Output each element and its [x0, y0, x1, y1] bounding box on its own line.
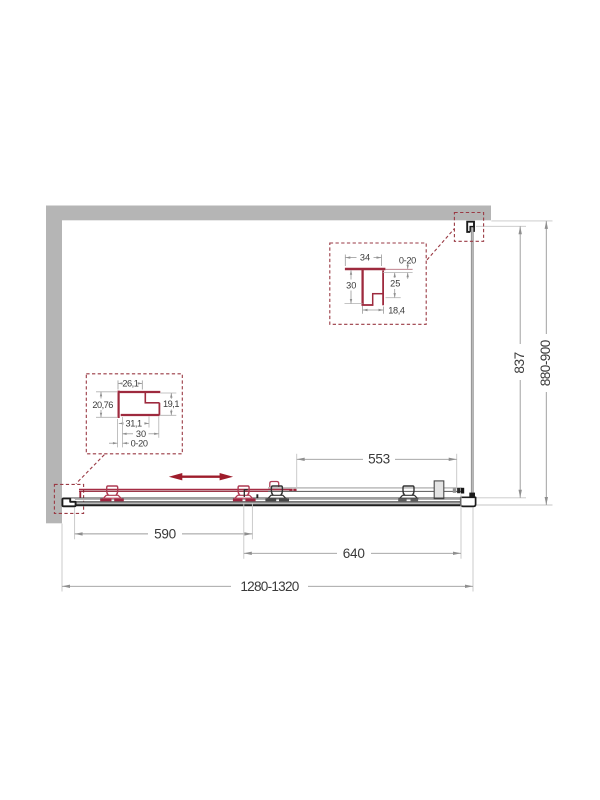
svg-text:1280-1320: 1280-1320 [240, 579, 299, 594]
svg-text:26,1: 26,1 [122, 378, 138, 388]
svg-text:837: 837 [512, 352, 527, 373]
svg-text:20,76: 20,76 [92, 400, 113, 410]
svg-text:25: 25 [390, 279, 400, 289]
svg-text:0-20: 0-20 [131, 439, 148, 449]
svg-text:30: 30 [136, 429, 146, 439]
svg-text:590: 590 [154, 526, 177, 541]
svg-text:34: 34 [360, 253, 370, 263]
svg-text:640: 640 [343, 546, 366, 561]
svg-text:31,1: 31,1 [126, 419, 142, 429]
svg-text:18,4: 18,4 [388, 305, 405, 315]
svg-text:30: 30 [346, 280, 356, 290]
svg-text:880-900: 880-900 [538, 339, 553, 386]
svg-text:19,1: 19,1 [163, 399, 179, 409]
svg-text:0-20: 0-20 [399, 255, 416, 265]
svg-text:553: 553 [368, 452, 390, 467]
